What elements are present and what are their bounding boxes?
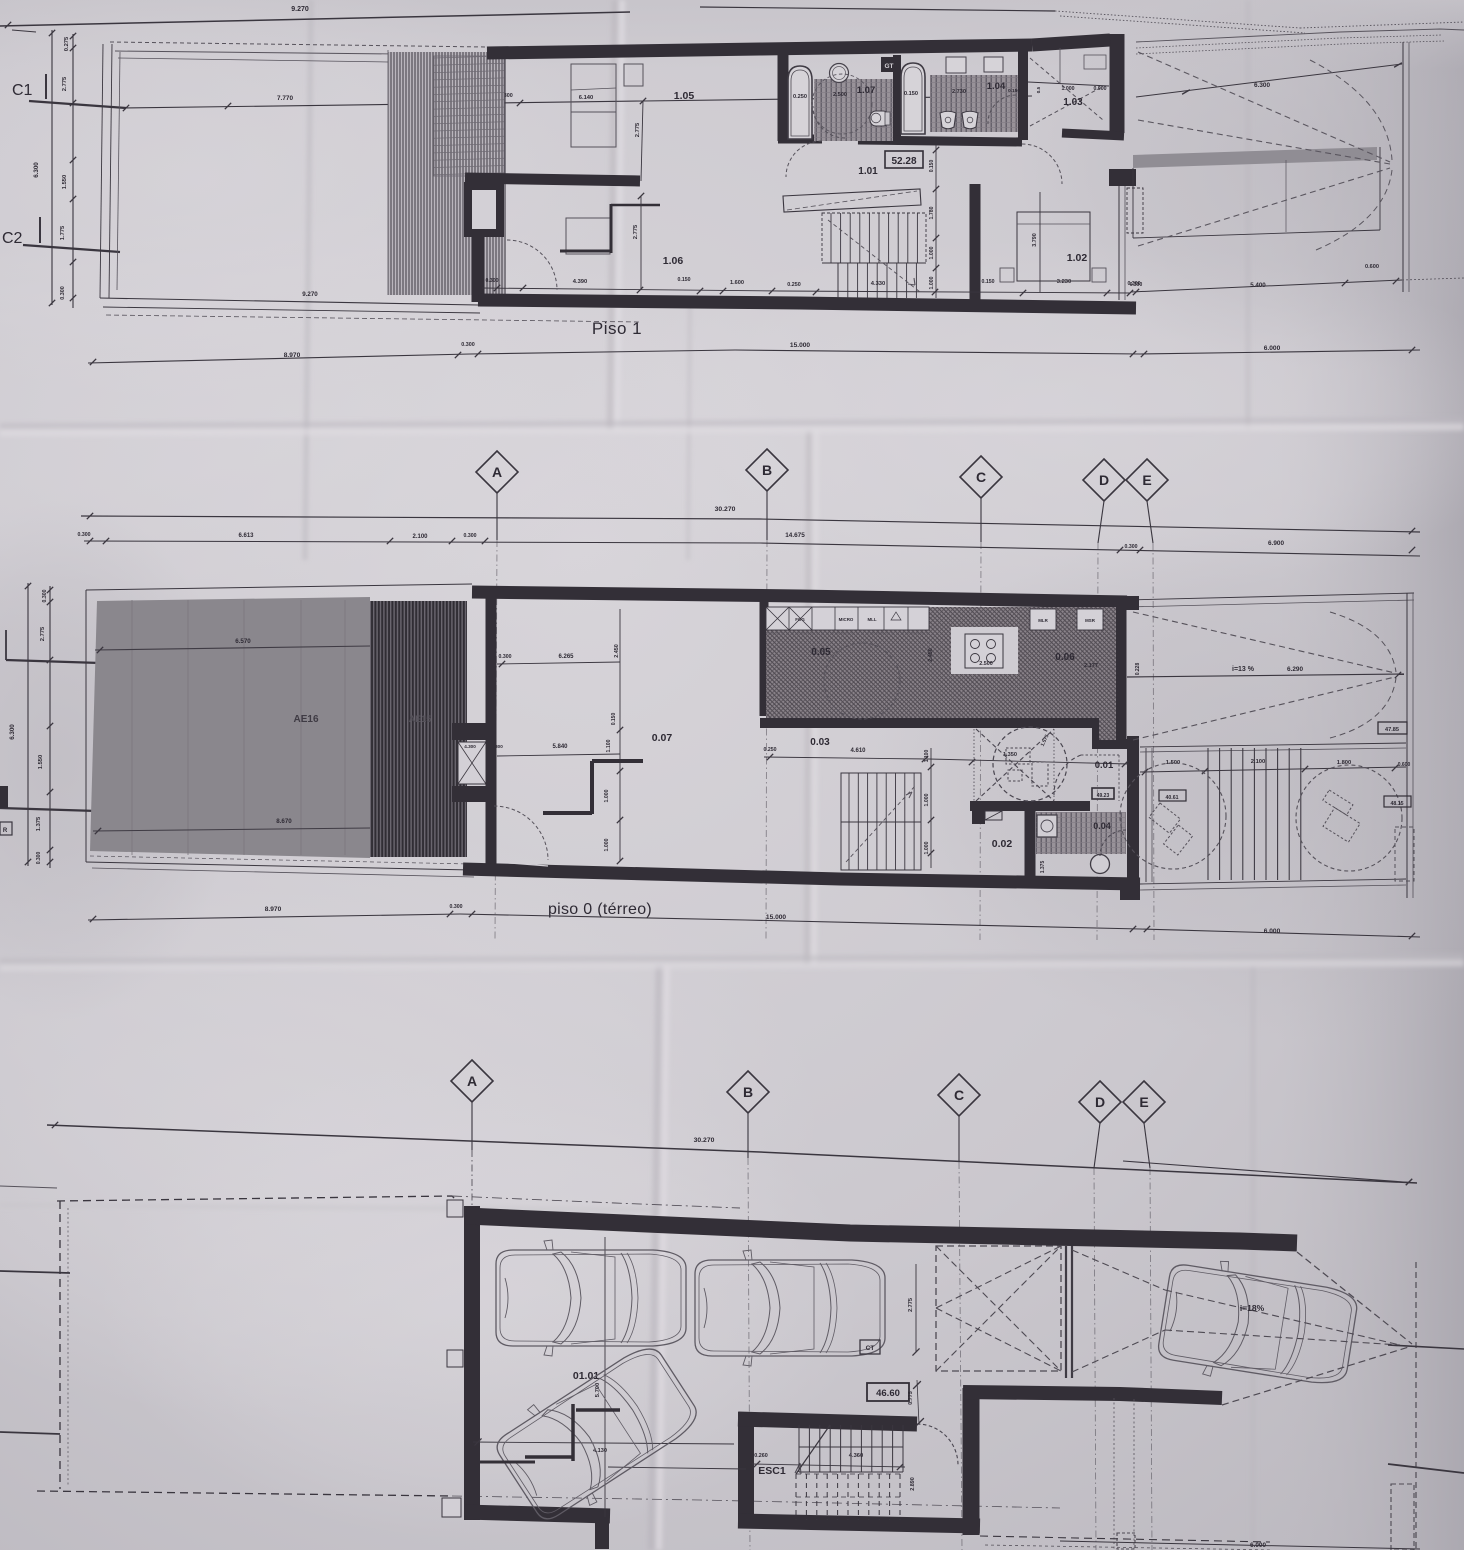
- svg-text:2.450: 2.450: [928, 648, 934, 662]
- svg-text:1.800: 1.800: [1337, 760, 1352, 766]
- svg-text:2.500: 2.500: [833, 92, 847, 98]
- svg-text:2.177: 2.177: [1084, 663, 1098, 669]
- svg-text:1.02: 1.02: [1067, 252, 1088, 264]
- svg-text:C: C: [954, 1087, 964, 1103]
- svg-text:1.775: 1.775: [60, 225, 66, 240]
- svg-text:8.970: 8.970: [284, 352, 301, 359]
- svg-text:MLL: MLL: [867, 617, 876, 622]
- svg-text:0.600: 0.600: [1398, 762, 1411, 768]
- svg-text:MLR: MLR: [1038, 618, 1048, 623]
- svg-text:30.270: 30.270: [694, 1137, 715, 1144]
- svg-text:3.230: 3.230: [1057, 279, 1072, 285]
- svg-text:0.150: 0.150: [929, 160, 935, 173]
- svg-text:0.150: 0.150: [678, 277, 691, 283]
- svg-text:2.730: 2.730: [952, 89, 966, 95]
- svg-text:FOG: FOG: [795, 617, 805, 622]
- svg-text:1.000: 1.000: [924, 841, 930, 854]
- svg-text:4.330: 4.330: [871, 281, 886, 287]
- svg-text:0.300: 0.300: [450, 904, 463, 910]
- svg-text:C: C: [976, 469, 986, 485]
- svg-text:R: R: [3, 828, 8, 834]
- svg-text:C1: C1: [12, 82, 33, 99]
- svg-text:1.06: 1.06: [663, 255, 684, 267]
- svg-text:0.150: 0.150: [611, 713, 617, 726]
- svg-text:1.000: 1.000: [929, 276, 935, 289]
- svg-text:AE15: AE15: [409, 714, 432, 724]
- svg-text:52.28: 52.28: [891, 156, 916, 167]
- svg-text:1.01: 1.01: [858, 166, 878, 177]
- svg-text:6.300: 6.300: [9, 724, 16, 740]
- svg-text:0.150: 0.150: [1008, 88, 1020, 94]
- svg-text:1.550: 1.550: [62, 175, 68, 190]
- svg-text:15.000: 15.000: [790, 342, 811, 349]
- svg-text:0.275: 0.275: [64, 36, 70, 51]
- svg-text:1.000: 1.000: [604, 789, 610, 802]
- svg-text:0.300: 0.300: [1130, 282, 1143, 288]
- svg-text:5.400: 5.400: [1250, 282, 1266, 289]
- svg-text:6.613: 6.613: [238, 533, 254, 539]
- svg-text:Piso 1: Piso 1: [592, 319, 642, 338]
- svg-text:6.290: 6.290: [1287, 666, 1303, 673]
- svg-text:8.670: 8.670: [276, 818, 292, 825]
- svg-text:2.450: 2.450: [614, 644, 620, 658]
- svg-text:E: E: [1142, 472, 1151, 488]
- svg-text:D: D: [1095, 1094, 1105, 1110]
- svg-text:i=13 %: i=13 %: [1232, 666, 1255, 673]
- svg-text:6.570: 6.570: [235, 638, 251, 645]
- svg-text:2.890: 2.890: [910, 1477, 916, 1491]
- svg-text:15.000: 15.000: [766, 914, 787, 921]
- svg-text:MICRO: MICRO: [839, 617, 854, 622]
- svg-text:2.775: 2.775: [635, 122, 641, 137]
- svg-text:0.300: 0.300: [60, 286, 66, 300]
- svg-text:C2: C2: [2, 230, 23, 247]
- svg-text:3.790: 3.790: [1032, 233, 1038, 247]
- svg-text:1.04: 1.04: [987, 81, 1006, 92]
- svg-text:1.000: 1.000: [1062, 86, 1075, 92]
- svg-text:0.150: 0.150: [904, 91, 918, 97]
- svg-text:A: A: [492, 464, 502, 480]
- svg-text:MSR: MSR: [1085, 618, 1096, 623]
- svg-text:0.150: 0.150: [982, 279, 995, 285]
- svg-text:2.100: 2.100: [412, 534, 428, 540]
- svg-text:46.60: 46.60: [876, 1388, 900, 1399]
- svg-text:0.02: 0.02: [992, 838, 1013, 850]
- svg-text:2.775: 2.775: [40, 626, 46, 641]
- svg-text:0.5: 0.5: [1036, 86, 1041, 93]
- svg-text:7.770: 7.770: [277, 95, 293, 102]
- svg-text:6.900: 6.900: [1268, 540, 1284, 547]
- svg-text:0.300: 0.300: [1125, 544, 1138, 550]
- svg-text:1.100: 1.100: [924, 750, 930, 763]
- svg-text:48.15: 48.15: [1391, 801, 1404, 807]
- svg-text:1.03: 1.03: [1063, 97, 1083, 108]
- svg-text:2.500: 2.500: [979, 661, 993, 667]
- svg-text:4.360: 4.360: [849, 1453, 864, 1459]
- svg-text:2.775: 2.775: [633, 224, 639, 239]
- svg-text:9.270: 9.270: [291, 6, 309, 13]
- svg-text:1.550: 1.550: [38, 755, 44, 770]
- svg-text:0.250: 0.250: [787, 282, 801, 288]
- svg-text:1.05: 1.05: [674, 90, 695, 102]
- svg-text:49.23: 49.23: [1097, 793, 1110, 799]
- svg-text:0.300: 0.300: [499, 654, 512, 660]
- svg-text:6.265: 6.265: [558, 654, 574, 660]
- svg-text:0.01: 0.01: [1095, 760, 1114, 771]
- svg-text:0.06: 0.06: [1055, 652, 1075, 663]
- svg-text:D: D: [1099, 472, 1109, 488]
- svg-text:0.300: 0.300: [461, 342, 475, 348]
- svg-text:8.970: 8.970: [265, 906, 282, 913]
- svg-text:E: E: [1139, 1094, 1148, 1110]
- svg-text:0.04: 0.04: [1093, 821, 1111, 831]
- svg-text:1.600: 1.600: [730, 280, 744, 286]
- svg-text:1.350: 1.350: [1003, 752, 1017, 758]
- svg-text:A: A: [467, 1073, 477, 1089]
- svg-text:5.840: 5.840: [552, 744, 568, 750]
- svg-text:1.000: 1.000: [604, 838, 610, 851]
- svg-text:B: B: [762, 462, 772, 478]
- svg-text:4.300: 4.300: [464, 744, 476, 749]
- svg-text:0.250: 0.250: [764, 747, 777, 753]
- svg-text:0.300: 0.300: [78, 532, 91, 538]
- svg-text:6.140: 6.140: [579, 95, 594, 101]
- svg-text:0.300: 0.300: [36, 852, 42, 865]
- svg-text:B: B: [743, 1084, 753, 1100]
- svg-text:2.100: 2.100: [1251, 759, 1266, 765]
- svg-text:0.260: 0.260: [754, 1453, 768, 1459]
- svg-text:0.250: 0.250: [793, 94, 807, 100]
- svg-text:AE16: AE16: [293, 714, 318, 725]
- svg-text:6.000: 6.000: [1264, 345, 1281, 352]
- svg-text:i=18%: i=18%: [1240, 1303, 1265, 1313]
- svg-text:1.780: 1.780: [929, 206, 935, 219]
- svg-text:1.375: 1.375: [1040, 861, 1046, 874]
- svg-text:0.300: 0.300: [486, 278, 499, 284]
- svg-text:1.07: 1.07: [857, 85, 876, 96]
- svg-text:4.390: 4.390: [573, 279, 588, 285]
- svg-text:9.270: 9.270: [302, 291, 318, 298]
- svg-text:GT: GT: [884, 63, 893, 70]
- svg-text:0.228: 0.228: [1135, 663, 1141, 676]
- svg-text:0.03: 0.03: [810, 737, 830, 748]
- svg-text:0.05: 0.05: [811, 647, 831, 658]
- svg-text:2.775: 2.775: [908, 1298, 914, 1312]
- svg-text:ESC1: ESC1: [758, 1465, 786, 1477]
- svg-text:47.85: 47.85: [1385, 727, 1399, 733]
- svg-text:40.61: 40.61: [1166, 795, 1179, 801]
- svg-text:1.100: 1.100: [606, 739, 612, 752]
- svg-text:14.675: 14.675: [785, 532, 805, 539]
- svg-text:0.300: 0.300: [42, 589, 48, 602]
- svg-text:CT: CT: [866, 1345, 875, 1352]
- svg-text:0.07: 0.07: [652, 732, 673, 744]
- svg-text:piso 0 (térreo): piso 0 (térreo): [548, 901, 652, 918]
- svg-text:0.600: 0.600: [1365, 264, 1379, 270]
- svg-text:1.000: 1.000: [929, 246, 935, 259]
- svg-text:0.900: 0.900: [1094, 86, 1107, 92]
- svg-text:2.775: 2.775: [62, 76, 68, 91]
- svg-text:1.375: 1.375: [36, 816, 42, 831]
- svg-text:6.300: 6.300: [1254, 82, 1270, 89]
- svg-text:6.000: 6.000: [1264, 928, 1281, 935]
- svg-text:6.300: 6.300: [33, 162, 40, 178]
- svg-text:0.300: 0.300: [464, 533, 477, 539]
- svg-text:1.000: 1.000: [924, 793, 930, 806]
- svg-text:30.270: 30.270: [715, 506, 736, 513]
- svg-text:4.610: 4.610: [850, 748, 866, 754]
